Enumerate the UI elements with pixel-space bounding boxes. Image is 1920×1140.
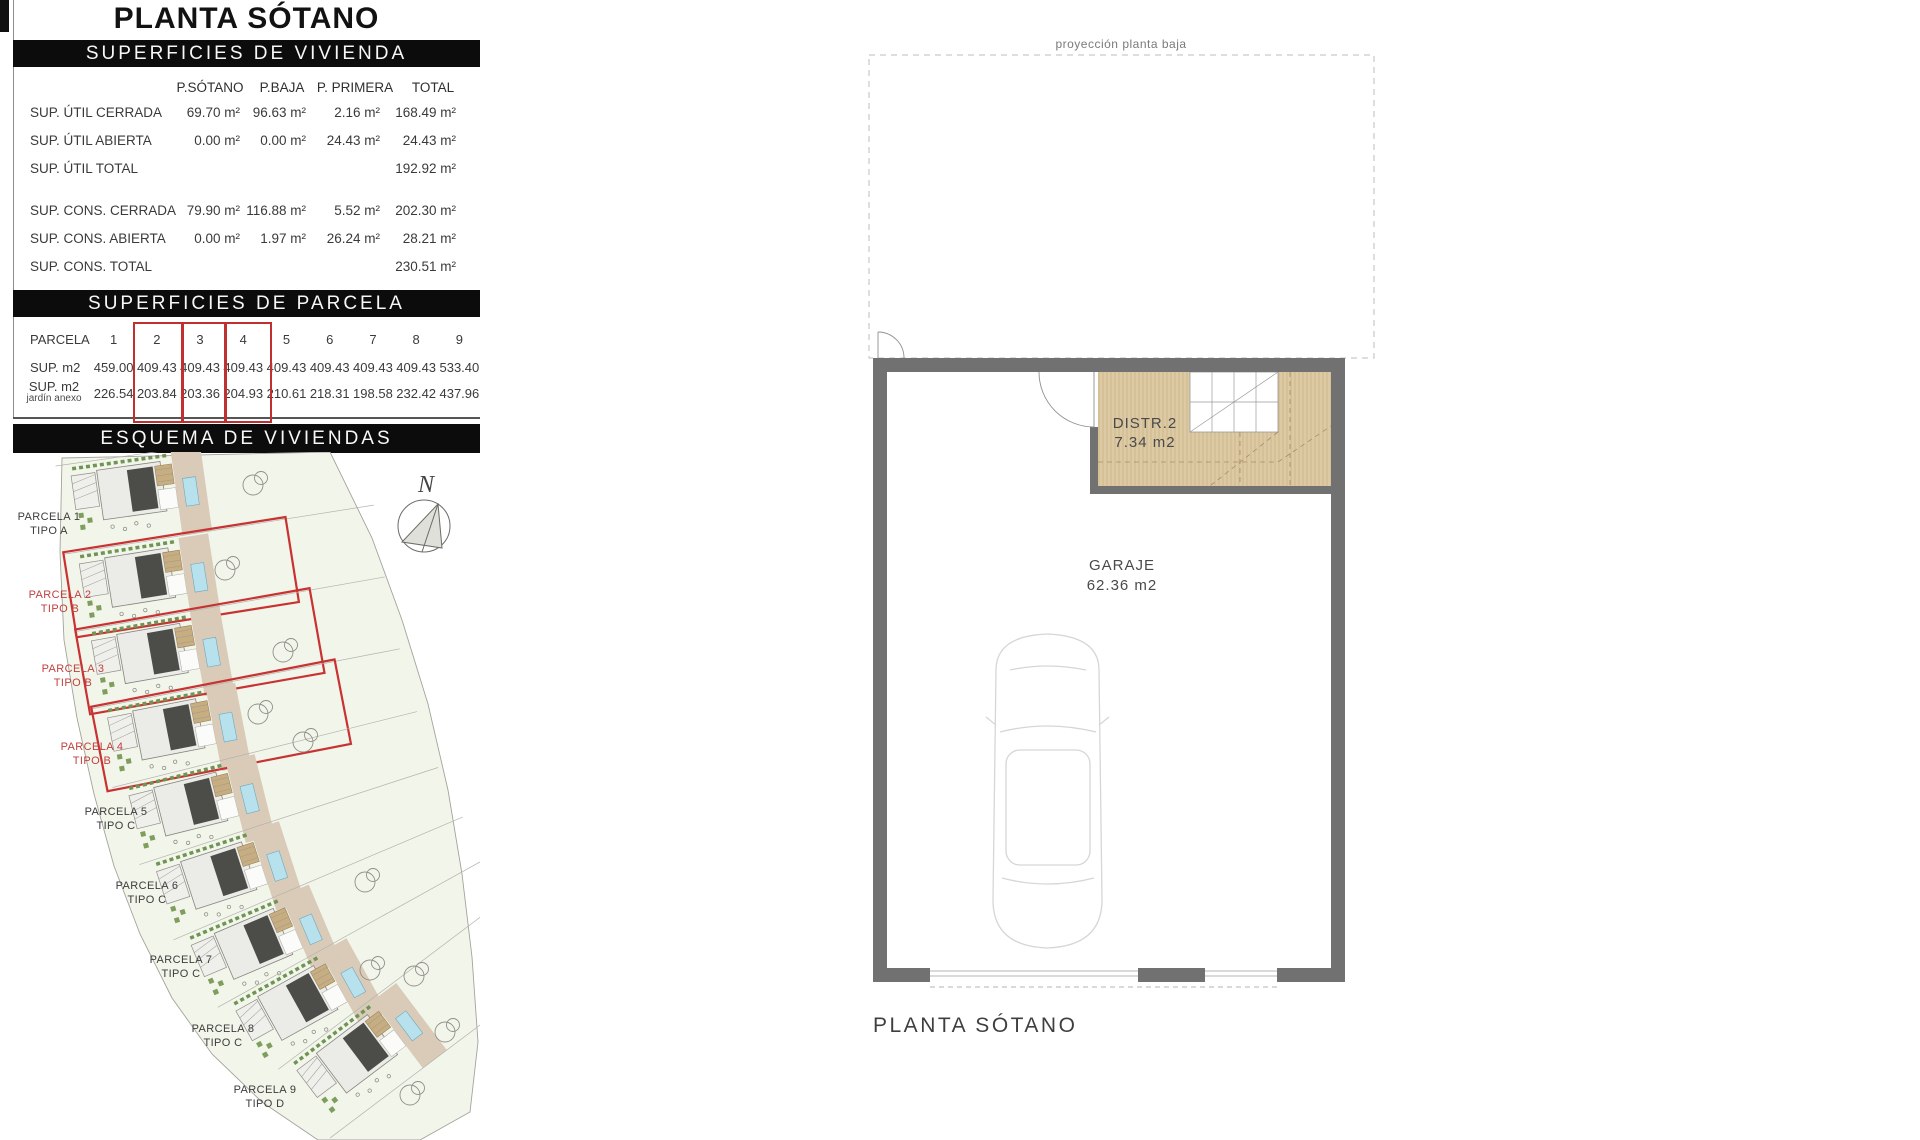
- parcel-label-tipo: TIPO A: [30, 525, 68, 537]
- table-row: SUP. ÚTIL TOTAL 192.92 m²: [0, 161, 480, 177]
- value-cell: 116.88 m²: [228, 203, 306, 218]
- value-cell: 26.24 m²: [298, 231, 380, 246]
- value-cell: 2.16 m²: [298, 105, 380, 120]
- parcela-cell: 459.00: [92, 360, 135, 375]
- wall-top: [873, 358, 1345, 372]
- parcela-cell: 218.31: [308, 386, 351, 401]
- parcel-label-tipo: TIPO C: [203, 1037, 242, 1049]
- row-label: SUP. ÚTIL CERRADA: [30, 105, 162, 120]
- plan-sheet: PLANTA SÓTANO SUPERFICIES DE VIVIENDA P.…: [0, 0, 1920, 1140]
- north-compass-icon: N: [398, 472, 450, 552]
- parcela-cell: 409.43: [351, 360, 394, 375]
- highlight-box-parcela-4: [224, 322, 272, 423]
- value-cell: 24.43 m²: [298, 133, 380, 148]
- parcel-label-tipo: TIPO B: [54, 677, 92, 689]
- table-row: SUP. CONS. CERRADA 79.90 m² 116.88 m² 5.…: [0, 203, 480, 219]
- distr2-wall-bottom: [1090, 486, 1345, 494]
- parcel-label-name: PARCELA 1: [18, 511, 81, 523]
- parcel-label-name: PARCELA 9: [234, 1084, 297, 1096]
- parcela-cell: 6: [308, 332, 351, 347]
- row-label: PARCELA: [30, 332, 90, 347]
- page-title: PLANTA SÓTANO: [13, 2, 480, 36]
- row-label-line1: SUP. m2: [29, 379, 79, 394]
- table-row: SUP. CONS. ABIERTA 0.00 m² 1.97 m² 26.24…: [0, 231, 480, 247]
- col-header-total: TOTAL: [383, 80, 483, 95]
- row-label: SUP. ÚTIL ABIERTA: [30, 133, 152, 148]
- distr2-area-label: 7.34 m2: [1114, 434, 1175, 451]
- projection-outline: [869, 55, 1374, 358]
- door-arc-icon: [878, 332, 904, 358]
- parcel-label-name: PARCELA 2: [29, 589, 92, 601]
- parcel-label-name: PARCELA 6: [116, 880, 179, 892]
- parcel-label-tipo: TIPO C: [161, 968, 200, 980]
- wall-bottom-right: [1277, 968, 1345, 982]
- parcela-cell: 232.42: [395, 386, 438, 401]
- table-row: SUP. CONS. TOTAL 230.51 m²: [0, 259, 480, 275]
- parcela-cell: 8: [395, 332, 438, 347]
- value-cell: 192.92 m²: [372, 161, 456, 176]
- parcela-cell: 7: [351, 332, 394, 347]
- parcel-label-name: PARCELA 7: [150, 954, 213, 966]
- parcel-label-tipo: TIPO B: [73, 755, 111, 767]
- viviendas-header-bar: SUPERFICIES DE VIVIENDA: [13, 40, 480, 67]
- value-cell: 230.51 m²: [372, 259, 456, 274]
- parcela-cell: 437.96: [438, 386, 481, 401]
- table-row: SUP. ÚTIL ABIERTA 0.00 m² 0.00 m² 24.43 …: [0, 133, 480, 149]
- value-cell: 0.00 m²: [152, 133, 240, 148]
- row-label: SUP. m2: [30, 360, 80, 375]
- value-cell: 24.43 m²: [372, 133, 456, 148]
- parcela-cell: 9: [438, 332, 481, 347]
- wall-bottom-left: [873, 968, 930, 982]
- corner-mark: [0, 0, 9, 32]
- value-cell: 202.30 m²: [372, 203, 456, 218]
- value-cell: 79.90 m²: [152, 203, 240, 218]
- distr2-wall-stub: [1090, 427, 1098, 494]
- parcel-label-tipo: TIPO D: [245, 1098, 284, 1110]
- row-label-line2: jardín anexo: [22, 394, 86, 405]
- highlight-box-parcela-2: [133, 322, 184, 423]
- north-label: N: [417, 472, 436, 498]
- parcela-cell: 409.43: [308, 360, 351, 375]
- distr2-label: DISTR.2: [1113, 415, 1178, 432]
- projection-label: proyección planta baja: [1055, 37, 1186, 51]
- parcel-label-name: PARCELA 4: [61, 741, 124, 753]
- parcel-label-name: PARCELA 5: [85, 806, 148, 818]
- wall-right: [1331, 358, 1345, 982]
- floor-plan: proyección planta baja: [850, 30, 1410, 1050]
- row-label: SUP. ÚTIL TOTAL: [30, 161, 138, 176]
- value-cell: 5.52 m²: [298, 203, 380, 218]
- parcela-cell: 409.43: [395, 360, 438, 375]
- garage-area-label: 62.36 m2: [1087, 577, 1158, 594]
- parcela-cell: 533.40: [438, 360, 481, 375]
- garage-label: GARAJE: [1089, 557, 1155, 574]
- value-cell: 0.00 m²: [152, 231, 240, 246]
- value-cell: 96.63 m²: [228, 105, 306, 120]
- value-cell: 69.70 m²: [152, 105, 240, 120]
- parcela-cell: 226.54: [92, 386, 135, 401]
- wall-bottom-middle: [1138, 968, 1205, 982]
- parcel-label-tipo: TIPO C: [127, 894, 166, 906]
- highlight-box-parcela-3: [181, 322, 227, 423]
- parcel-label-name: PARCELA 3: [42, 663, 105, 675]
- viviendas-column-headers: P.SÓTANO P.BAJA P. PRIMERA TOTAL: [0, 80, 480, 96]
- value-cell: 28.21 m²: [372, 231, 456, 246]
- value-cell: 0.00 m²: [228, 133, 306, 148]
- table-row: SUP. ÚTIL CERRADA 69.70 m² 96.63 m² 2.16…: [0, 105, 480, 121]
- wall-left: [873, 358, 887, 982]
- parcel-label-tipo: TIPO C: [96, 820, 135, 832]
- row-label: SUP. CONS. ABIERTA: [30, 231, 166, 246]
- parcel-label-tipo: TIPO B: [41, 603, 79, 615]
- plan-caption: PLANTA SÓTANO: [873, 1014, 1077, 1037]
- value-cell: 1.97 m²: [228, 231, 306, 246]
- row-label: SUP. CONS. TOTAL: [30, 259, 152, 274]
- stairs-icon: [1190, 372, 1278, 432]
- parcel-label-name: PARCELA 8: [192, 1023, 255, 1035]
- parcela-cell: 198.58: [351, 386, 394, 401]
- parcela-cell: 1: [92, 332, 135, 347]
- value-cell: 168.49 m²: [372, 105, 456, 120]
- site-plan: N PARCELA 1 TIPO A PARCELA 2 TIPO B PARC…: [0, 452, 480, 1140]
- esquema-header-bar: ESQUEMA DE VIVIENDAS: [13, 424, 480, 453]
- parcelas-header-bar: SUPERFICIES DE PARCELA: [13, 290, 480, 317]
- row-label: SUP. m2 jardín anexo: [22, 380, 86, 404]
